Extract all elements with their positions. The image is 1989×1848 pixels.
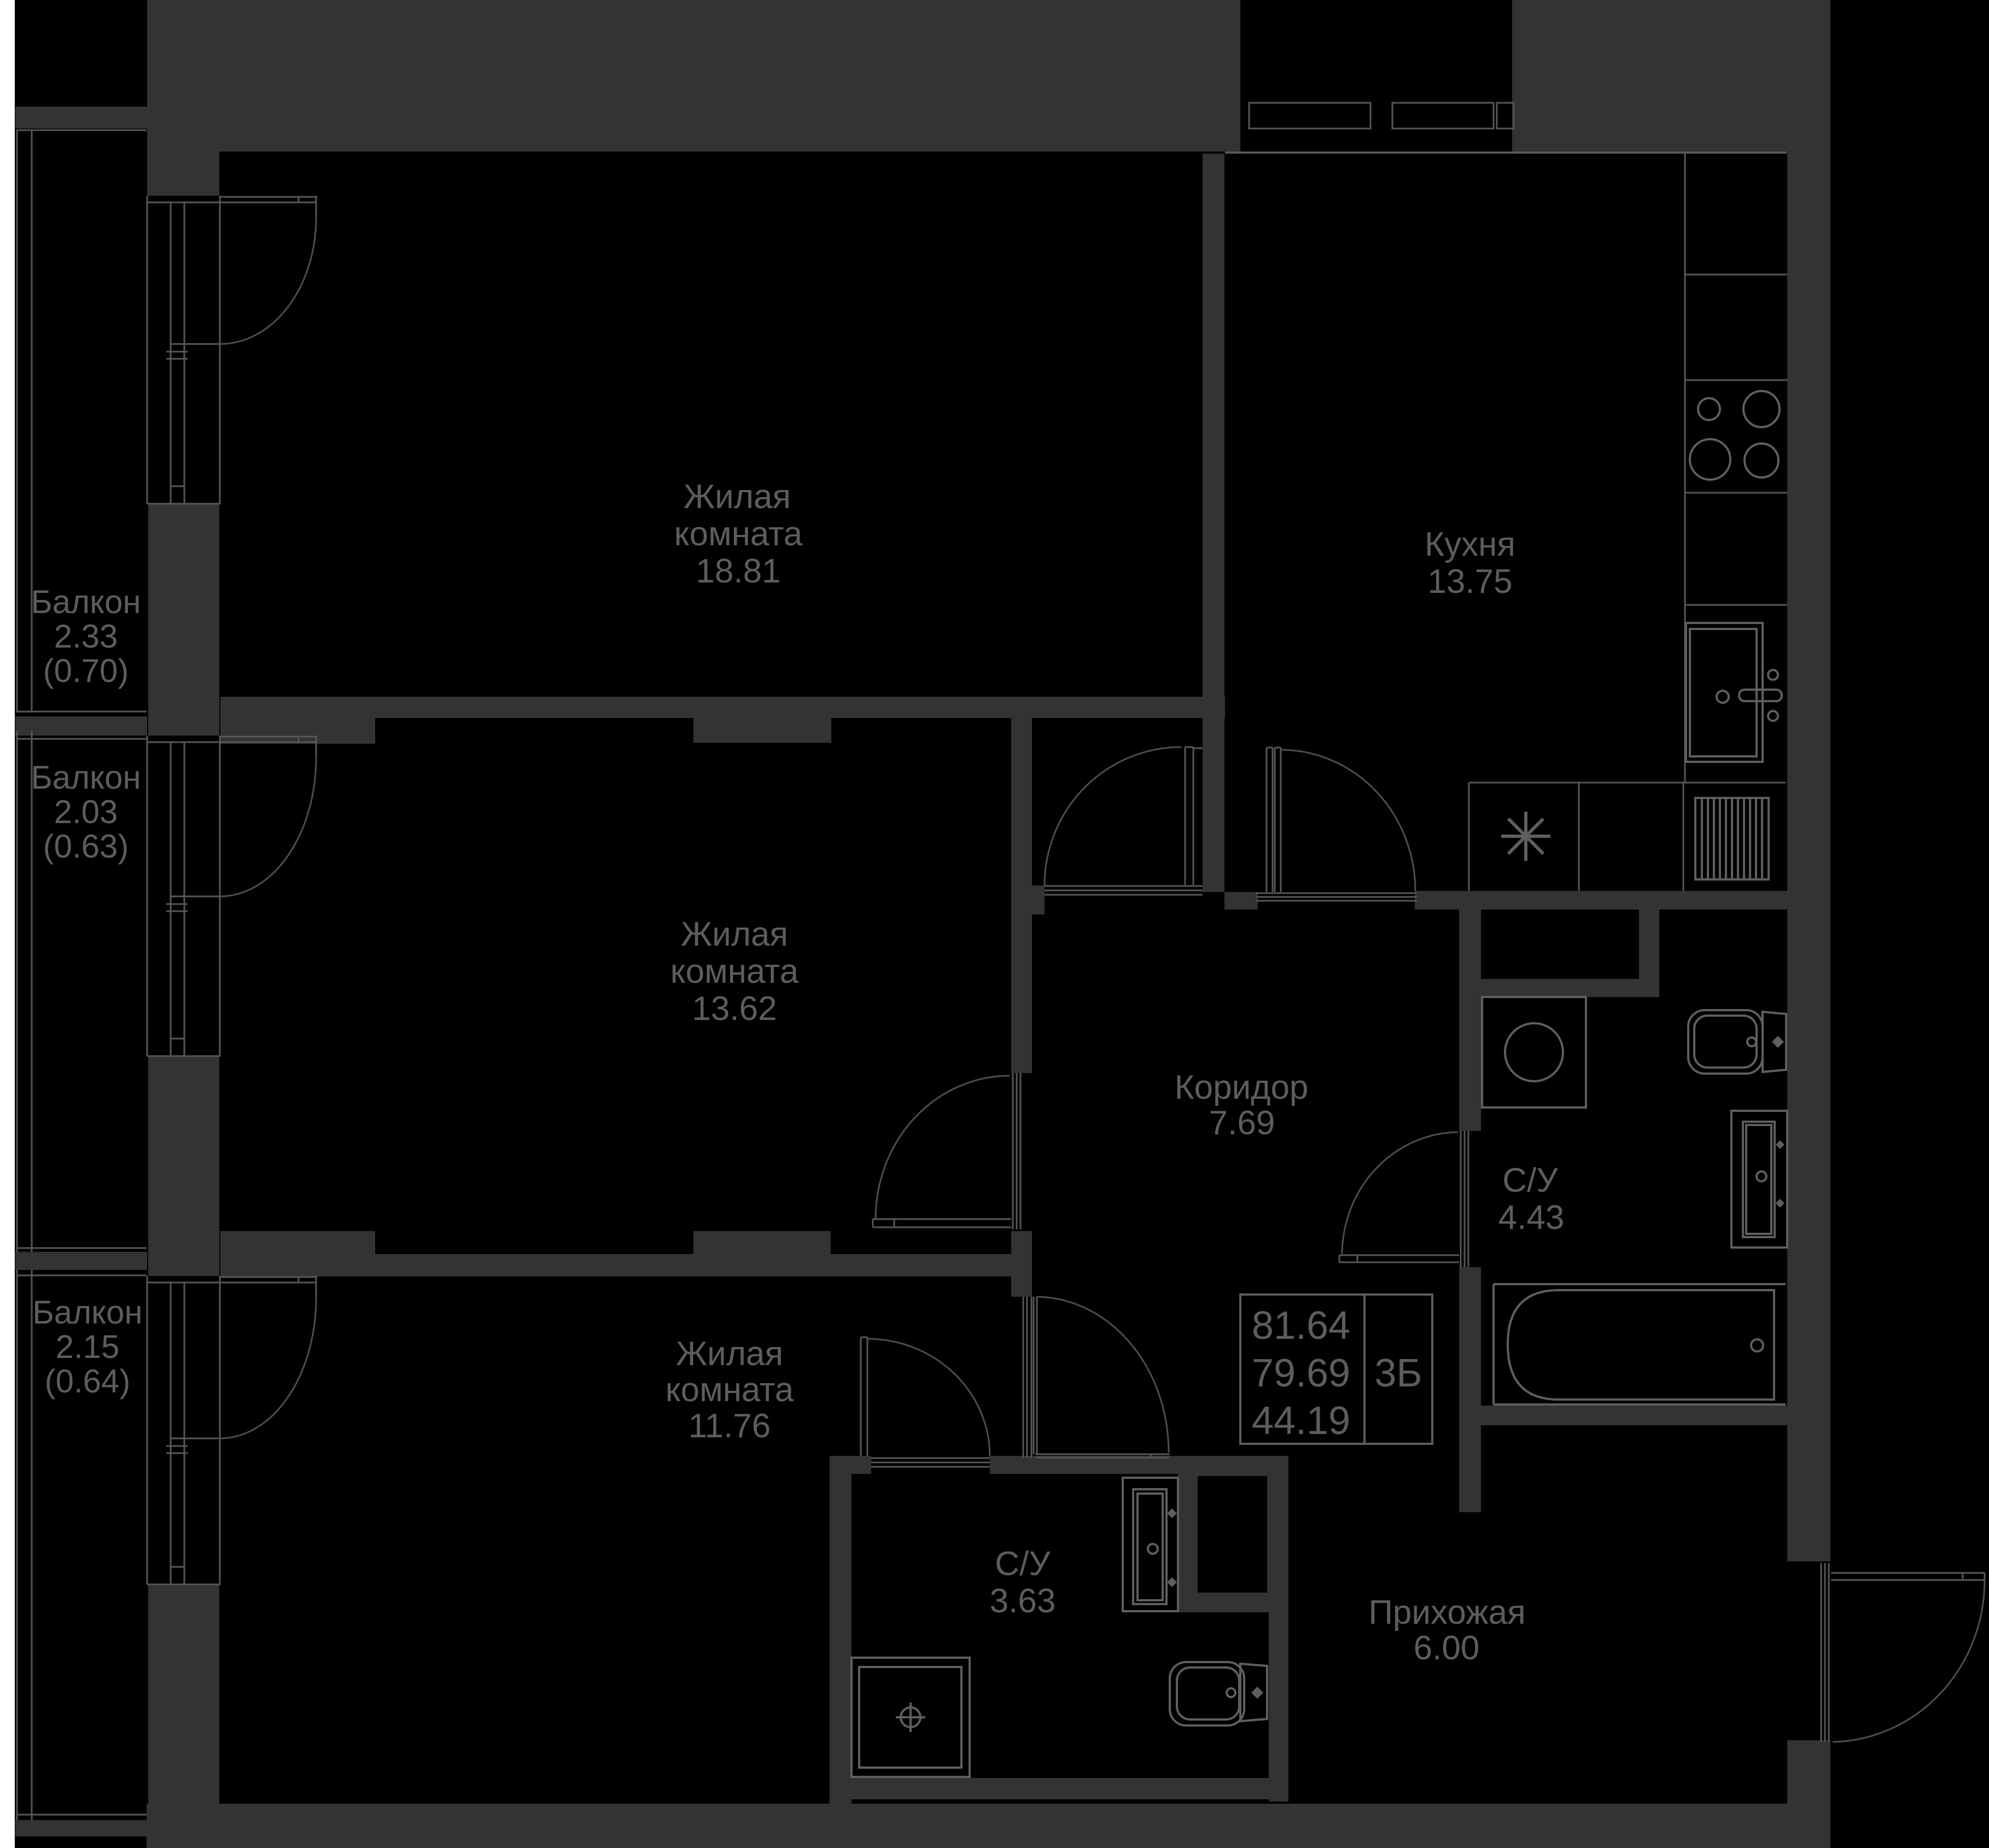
svg-text:комната: комната: [666, 1371, 794, 1409]
svg-text:Жилая: Жилая: [681, 916, 788, 953]
svg-text:(0.63): (0.63): [43, 828, 129, 865]
svg-text:Балкон: Балкон: [32, 1294, 142, 1331]
svg-text:81.64: 81.64: [1252, 1304, 1350, 1348]
svg-text:комната: комната: [670, 953, 799, 990]
svg-text:Балкон: Балкон: [31, 584, 141, 620]
svg-text:6.00: 6.00: [1414, 1629, 1480, 1667]
svg-text:Жилая: Жилая: [684, 478, 791, 516]
svg-text:С/У: С/У: [995, 1545, 1051, 1583]
svg-text:18.81: 18.81: [696, 552, 780, 590]
svg-text:79.69: 79.69: [1252, 1351, 1350, 1395]
svg-text:11.76: 11.76: [689, 1407, 771, 1445]
svg-text:Жилая: Жилая: [676, 1335, 783, 1373]
svg-text:С/У: С/У: [1502, 1162, 1558, 1199]
svg-text:2.03: 2.03: [54, 794, 118, 830]
svg-text:Балкон: Балкон: [31, 759, 141, 796]
svg-text:Кухня: Кухня: [1425, 526, 1515, 563]
svg-text:(0.70): (0.70): [43, 652, 129, 689]
svg-text:(0.64): (0.64): [45, 1363, 131, 1400]
svg-text:44.19: 44.19: [1252, 1399, 1350, 1443]
svg-text:7.69: 7.69: [1209, 1104, 1275, 1142]
svg-text:Прихожая: Прихожая: [1368, 1594, 1525, 1631]
svg-text:13.62: 13.62: [692, 990, 777, 1028]
svg-text:2.33: 2.33: [54, 618, 118, 655]
svg-text:13.75: 13.75: [1427, 563, 1512, 601]
svg-text:2.15: 2.15: [56, 1328, 120, 1365]
svg-text:комната: комната: [674, 515, 803, 553]
svg-text:4.43: 4.43: [1498, 1199, 1565, 1237]
svg-text:Коридор: Коридор: [1175, 1069, 1309, 1106]
svg-text:3Б: 3Б: [1374, 1351, 1422, 1395]
svg-text:3.63: 3.63: [990, 1582, 1056, 1620]
